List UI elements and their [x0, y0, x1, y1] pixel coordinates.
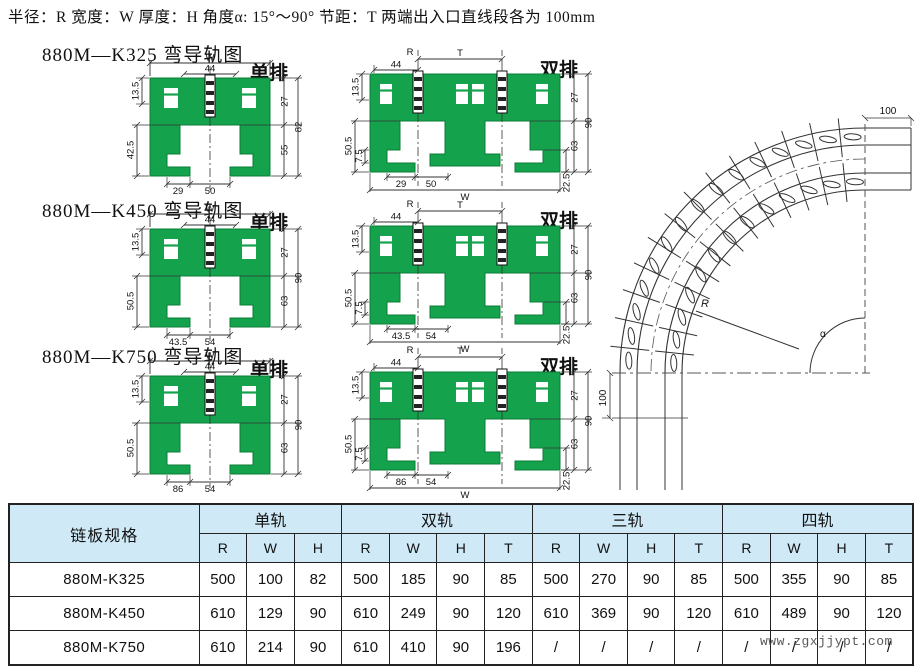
- dim-label: 55: [280, 145, 291, 156]
- table-cell: 489: [770, 597, 818, 631]
- row-name-cell: 880M-K450: [9, 597, 199, 631]
- table-cell: 85: [675, 563, 723, 597]
- dim-label: 44: [205, 215, 216, 226]
- sub-col-header: T: [485, 534, 533, 563]
- sub-col-header: W: [770, 534, 818, 563]
- dim-label: 13.5: [131, 82, 142, 101]
- curve-bottom-straight-dim: 100: [598, 389, 609, 406]
- dim-label: 43.5: [169, 337, 188, 348]
- curve-geometry: [602, 115, 914, 490]
- table-cell: 90: [294, 631, 342, 666]
- table-cell: 85: [485, 563, 533, 597]
- dim-label: W: [461, 490, 470, 501]
- table-cell: 270: [580, 563, 628, 597]
- dim-label: 50.5: [126, 292, 137, 311]
- sub-col-header: T: [675, 534, 723, 563]
- dim-label: W: [206, 204, 215, 215]
- catalog-page: 半径：R 宽度：W 厚度：H 角度α: 15°～90° 节距：T 两端出入口直线…: [0, 0, 921, 669]
- curved-rail-diagram: 100 100 R α: [598, 88, 921, 503]
- row-name-cell: 880M-K325: [9, 563, 199, 597]
- table-cell: 90: [627, 563, 675, 597]
- table-cell: 500: [342, 563, 390, 597]
- table-cell: 120: [675, 597, 723, 631]
- row-name-cell: 880M-K750: [9, 631, 199, 666]
- dim-label: 50: [205, 186, 216, 197]
- table-cell: 610: [342, 597, 390, 631]
- dim-label: T: [457, 48, 463, 59]
- dim-label: 50.5: [344, 435, 355, 454]
- table-cell: /: [675, 631, 723, 666]
- dim-label: 50.5: [126, 439, 137, 458]
- dim-label: 27: [570, 390, 581, 401]
- sub-col-header: H: [627, 534, 675, 563]
- dim-label: 54: [426, 331, 437, 342]
- dim-label: R: [407, 47, 414, 58]
- dim-label: R: [407, 199, 414, 210]
- table-cell: 610: [199, 597, 247, 631]
- table-cell: 85: [865, 563, 913, 597]
- dim-label: 44: [391, 60, 402, 71]
- profile-drawing-k325-single: W4413.542.52950275582: [88, 52, 338, 204]
- dim-label: 7.5: [354, 149, 365, 162]
- table-cell: 214: [247, 631, 295, 666]
- dim-label: W: [206, 351, 215, 362]
- table-cell: 82: [294, 563, 342, 597]
- dim-label: 13.5: [351, 230, 362, 249]
- curve-top-straight-dim: 100: [880, 106, 897, 117]
- dim-label: 63: [570, 293, 581, 304]
- dim-label: 63: [570, 439, 581, 450]
- dim-label: T: [457, 200, 463, 211]
- dim-label: 63: [280, 296, 291, 307]
- table-cell: 355: [770, 563, 818, 597]
- table-cell: 90: [437, 631, 485, 666]
- dim-label: 43.5: [392, 331, 411, 342]
- curve-angle-label: α: [820, 329, 826, 340]
- dim-label: 90: [584, 270, 595, 281]
- table-cell: 369: [580, 597, 628, 631]
- table-cell: 500: [532, 563, 580, 597]
- table-cell: 500: [723, 563, 771, 597]
- group-header-double-rail: 双轨: [342, 504, 532, 534]
- page-header-note: 半径：R 宽度：W 厚度：H 角度α: 15°～90° 节距：T 两端出入口直线…: [8, 5, 595, 27]
- dim-label: 44: [391, 212, 402, 223]
- watermark: www.zgxjjypt.com: [760, 634, 893, 649]
- table-cell: /: [627, 631, 675, 666]
- profile-drawing-k750-double: RT4413.550.57.58654W22.5276390: [328, 342, 628, 507]
- group-header-triple-rail: 三轨: [532, 504, 722, 534]
- dim-label: 54: [205, 484, 216, 495]
- group-header-single-rail: 单轨: [199, 504, 342, 534]
- dim-label: 44: [205, 362, 216, 373]
- dim-label: 29: [173, 186, 184, 197]
- table-cell: /: [532, 631, 580, 666]
- sub-col-header: R: [723, 534, 771, 563]
- dim-label: 22.5: [562, 174, 573, 193]
- sub-col-header: R: [532, 534, 580, 563]
- group-header-quad-rail: 四轨: [723, 504, 913, 534]
- table-cell: 610: [342, 631, 390, 666]
- table-cell: 90: [818, 597, 866, 631]
- dim-label: 90: [584, 118, 595, 129]
- dim-label: 7.5: [354, 447, 365, 460]
- table-cell: 120: [485, 597, 533, 631]
- table-cell: 610: [723, 597, 771, 631]
- dim-label: 29: [396, 179, 407, 190]
- dim-label: 50.5: [344, 137, 355, 156]
- dim-label: 90: [294, 420, 305, 431]
- dim-label: 86: [396, 477, 407, 488]
- dim-label: 44: [205, 64, 216, 75]
- table-cell: 90: [437, 597, 485, 631]
- sub-col-header: R: [342, 534, 390, 563]
- dim-label: 27: [280, 96, 291, 107]
- table-cell: 90: [294, 597, 342, 631]
- dim-label: 13.5: [351, 78, 362, 97]
- profile-drawing-k325-double: RT4413.550.57.52950W22.5276390: [328, 44, 628, 209]
- table-cell: 90: [627, 597, 675, 631]
- dim-label: 44: [391, 358, 402, 369]
- dim-label: 54: [426, 477, 437, 488]
- table-cell: 120: [865, 597, 913, 631]
- table-cell: 129: [247, 597, 295, 631]
- dim-label: 13.5: [351, 376, 362, 395]
- dim-label: T: [457, 346, 463, 357]
- sub-col-header: H: [294, 534, 342, 563]
- table-cell: 410: [389, 631, 437, 666]
- dim-label: 27: [570, 244, 581, 255]
- dim-label: 27: [280, 394, 291, 405]
- sub-col-header: W: [389, 534, 437, 563]
- table-cell: /: [580, 631, 628, 666]
- table-cell: 610: [199, 631, 247, 666]
- col-header-chain-spec: 链板规格: [9, 504, 199, 563]
- table-row: 880M-K3255001008250018590855002709085500…: [9, 563, 913, 597]
- table-cell: 196: [485, 631, 533, 666]
- profile-drawing-k750-single: W4413.550.58654276390: [88, 350, 338, 502]
- dim-label: 63: [570, 141, 581, 152]
- table-cell: 100: [247, 563, 295, 597]
- dim-label: 27: [280, 247, 291, 258]
- dim-label: 63: [280, 443, 291, 454]
- table-cell: 500: [199, 563, 247, 597]
- dim-label: 50: [426, 179, 437, 190]
- sub-col-header: R: [199, 534, 247, 563]
- sub-col-header: H: [818, 534, 866, 563]
- table-cell: 90: [818, 563, 866, 597]
- table-cell: 249: [389, 597, 437, 631]
- dim-label: 90: [584, 416, 595, 427]
- table-cell: 185: [389, 563, 437, 597]
- dim-label: 22.5: [562, 472, 573, 491]
- dim-label: W: [206, 53, 215, 64]
- sub-col-header: H: [437, 534, 485, 563]
- dim-label: 82: [294, 122, 305, 133]
- sub-col-header: W: [247, 534, 295, 563]
- sub-col-header: T: [865, 534, 913, 563]
- table-row: 880M-K4506101299061024990120610369901206…: [9, 597, 913, 631]
- dim-label: 27: [570, 92, 581, 103]
- dim-label: R: [407, 345, 414, 356]
- dim-label: 90: [294, 273, 305, 284]
- dim-label: 13.5: [131, 233, 142, 252]
- profile-drawing-k450-double: RT4413.550.57.543.554W22.5276390: [328, 196, 628, 361]
- table-cell: 90: [437, 563, 485, 597]
- curve-radius-label: R: [701, 298, 709, 310]
- dim-label: 86: [173, 484, 184, 495]
- dim-label: 42.5: [126, 141, 137, 160]
- dim-label: 13.5: [131, 380, 142, 399]
- dim-label: 54: [205, 337, 216, 348]
- profile-drawing-k450-single: W4413.550.543.554276390: [88, 203, 338, 355]
- sub-col-header: W: [580, 534, 628, 563]
- dim-label: 7.5: [354, 301, 365, 314]
- table-cell: 610: [532, 597, 580, 631]
- dim-label: 50.5: [344, 289, 355, 308]
